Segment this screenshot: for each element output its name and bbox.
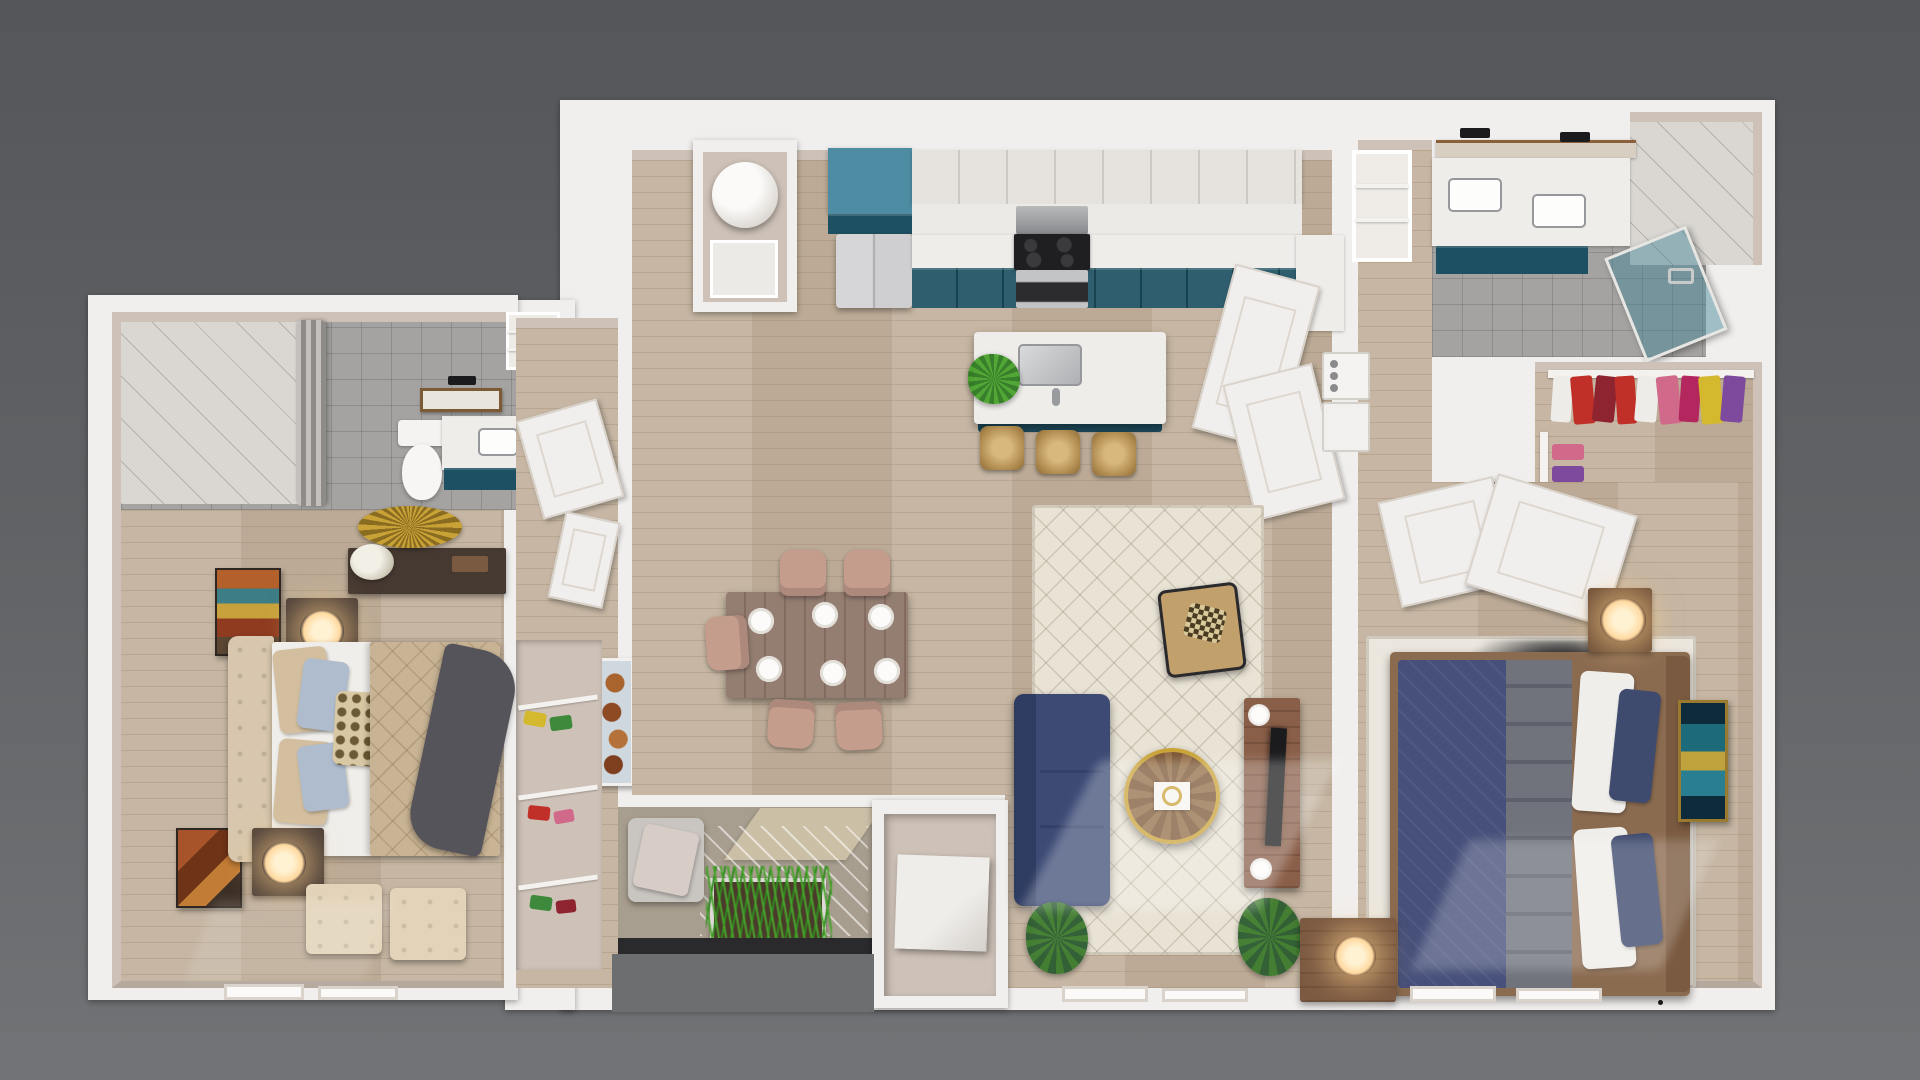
dresser-decor-box: [452, 556, 488, 572]
master-bed-gray-duvet: [1506, 660, 1572, 988]
console-candle-a: [1248, 704, 1270, 726]
master-vanity-mirror: [1436, 140, 1636, 158]
shower-handle-chrome: [1668, 268, 1694, 284]
living-window-a: [1062, 986, 1148, 1002]
sunburst-mirror: [358, 506, 462, 548]
dining-chair-5: [835, 701, 883, 751]
island-plant: [968, 354, 1020, 404]
clothes-hanging-9: [1720, 375, 1746, 423]
console-candle-b: [1250, 858, 1272, 880]
bathroom2-shower: [121, 322, 317, 504]
master-dresser-lamp: [1334, 936, 1376, 976]
bar-stool-3: [1092, 432, 1136, 476]
master-sink-a: [1448, 178, 1502, 212]
clothes-folded-2: [1552, 466, 1584, 482]
shower-curtain: [296, 320, 326, 506]
master-window-a: [1410, 986, 1496, 1002]
upper-cabinets: [912, 150, 1302, 204]
oven: [1016, 270, 1088, 308]
master-sconce-b: [1560, 132, 1590, 142]
island-sink: [1018, 344, 1082, 386]
sofa-cushions: [1040, 716, 1104, 884]
cooktop: [1014, 234, 1090, 270]
sofa-back: [1014, 694, 1036, 906]
dryer: [1322, 402, 1370, 452]
patio-open-edge: [612, 954, 874, 1012]
microwave: [1016, 206, 1088, 234]
pantry-cabinet-blue: [828, 148, 912, 214]
dresser-flowers: [350, 544, 394, 580]
master-vanity-cabinets: [1436, 246, 1588, 274]
lamp-2b: [262, 842, 306, 884]
hall-linen-shelf-1: [1356, 184, 1408, 188]
clothes-folded-1: [1552, 444, 1584, 460]
kitchen-counter: [912, 235, 1302, 268]
bedroom2-window-b: [318, 986, 398, 1000]
shoes-colorful-5: [529, 895, 553, 912]
master-lamp: [1600, 598, 1646, 642]
plate-setting-3: [868, 604, 894, 630]
plate-setting-1: [748, 608, 774, 634]
living-window-b: [1162, 988, 1248, 1002]
dining-chair-4: [766, 698, 815, 749]
washer: [1322, 352, 1370, 400]
patio-threshold-dark: [618, 938, 876, 954]
shoes-colorful-3: [527, 805, 550, 821]
washer-dials: [1330, 360, 1338, 368]
island-faucet: [1052, 388, 1060, 406]
coffee-table-gold-decor: [1162, 786, 1182, 806]
hall-linen-shelves: [1352, 150, 1412, 262]
refrigerator: [836, 234, 912, 308]
floor-plan-render: [0, 0, 1920, 1080]
bedroom2-window-a: [224, 984, 304, 1000]
dining-chair-3: [704, 615, 750, 672]
kitchen-backsplash: [912, 204, 1302, 235]
ottoman-b: [390, 888, 466, 960]
water-heater-shelf: [710, 240, 778, 298]
living-plant-right: [1238, 898, 1302, 976]
shoes-colorful-6: [555, 899, 576, 914]
toilet-bowl: [402, 444, 442, 500]
master-sconce-a: [1460, 128, 1490, 138]
plate-setting-5: [820, 660, 846, 686]
toilet: [398, 420, 446, 446]
patio-storage-cube: [894, 854, 989, 951]
dining-chair-2: [844, 550, 890, 596]
bar-stool-2: [1036, 430, 1080, 474]
vanity2-sink: [478, 428, 518, 456]
plate-setting-6: [874, 658, 900, 684]
plate-setting-4: [756, 656, 782, 682]
water-heater-tank: [712, 162, 778, 228]
living-plant-left: [1026, 902, 1088, 974]
pantry-cabinet-front: [828, 214, 912, 234]
master-sink-b: [1532, 194, 1586, 228]
master-art-teal: [1678, 700, 1728, 822]
master-window-b: [1516, 988, 1602, 1002]
hall-linen-shelf-2: [1356, 218, 1408, 222]
ottoman-a: [306, 884, 382, 954]
vanity2-sconce: [448, 376, 476, 385]
vanity2-mirror: [420, 388, 502, 412]
bar-stool-1: [980, 426, 1024, 470]
dining-chair-1: [780, 550, 826, 596]
plate-setting-2: [812, 602, 838, 628]
